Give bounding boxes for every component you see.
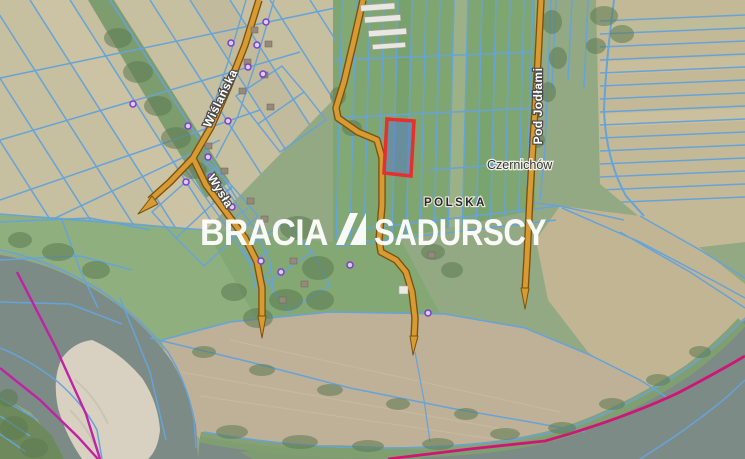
- house: [221, 168, 228, 174]
- address-point-icon: [225, 118, 231, 124]
- address-point-icon: [263, 19, 269, 25]
- house: [301, 281, 308, 287]
- address-point-icon: [254, 42, 260, 48]
- address-point-icon: [130, 101, 136, 107]
- address-point-icon: [245, 64, 251, 70]
- address-point-icon: [228, 40, 234, 46]
- address-point-icon: [183, 179, 189, 185]
- house: [247, 198, 254, 204]
- watermark-brand-right: SADURSCY: [374, 212, 547, 253]
- map-canvas: Wiślańska Wysła Pod Jodłami Czernichów P…: [0, 0, 745, 459]
- address-point-icon: [258, 258, 264, 264]
- house: [290, 258, 297, 264]
- watermark-brand-left: BRACIA: [200, 212, 328, 253]
- address-point-icon: [185, 123, 191, 129]
- address-point-icon: [425, 310, 431, 316]
- house: [251, 27, 258, 33]
- house: [267, 104, 274, 110]
- town-label: Czernichów: [487, 158, 553, 172]
- house: [205, 143, 212, 149]
- address-point-icon: [278, 269, 284, 275]
- house: [239, 88, 246, 94]
- address-point-icon: [205, 154, 211, 160]
- highlighted-parcel[interactable]: [384, 119, 414, 176]
- house: [265, 41, 272, 47]
- white-building: [399, 286, 408, 294]
- map-viewport[interactable]: Wiślańska Wysła Pod Jodłami Czernichów P…: [0, 0, 745, 459]
- house: [279, 297, 286, 303]
- address-point-icon: [347, 262, 353, 268]
- brand-watermark: BRACIA SADURSCY: [200, 212, 547, 253]
- address-point-icon: [260, 71, 266, 77]
- road-label-pod-jodlami: Pod Jodłami: [531, 68, 545, 145]
- country-label: POLSKA: [424, 197, 487, 209]
